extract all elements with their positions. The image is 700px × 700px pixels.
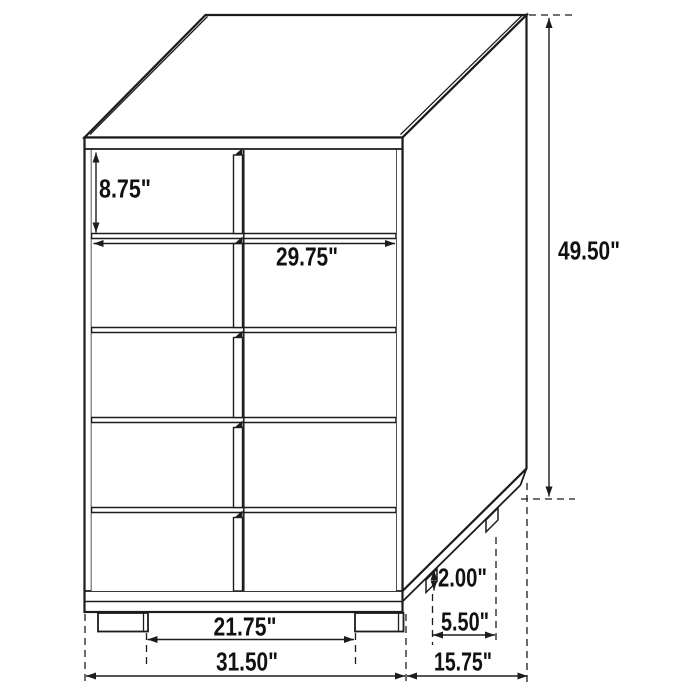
overall-width-label: 31.50"	[216, 647, 278, 677]
rear-foot-back	[486, 508, 498, 532]
drawer-handle-5	[234, 518, 243, 592]
drawer-handles	[234, 148, 243, 591]
front-foot-left	[98, 613, 148, 632]
leg-height-label: 2.00"	[438, 563, 487, 593]
rear-leg-spacing-label: 5.50"	[441, 607, 489, 637]
front-foot-right	[355, 613, 404, 632]
drawer-handle-3	[234, 338, 243, 418]
overall-depth-label: 15.75"	[434, 647, 492, 677]
drawer-handle-1	[234, 155, 243, 234]
drawer-width-label: 29.75"	[276, 242, 338, 272]
overall-height-label: 49.50"	[558, 236, 620, 266]
drawer-handle-2	[234, 244, 243, 328]
front-leg-spacing-label: 21.75"	[214, 612, 277, 642]
drawer-stack	[92, 148, 397, 591]
drawer-height-label: 8.75"	[99, 174, 151, 204]
drawer-handle-4	[234, 428, 243, 508]
dimension-diagram-page: 8.75" 29.75" 49.50" 2.00" 5.50" 21.75" 3…	[0, 0, 700, 700]
chest-diagram-svg: 8.75" 29.75" 49.50" 2.00" 5.50" 21.75" 3…	[0, 0, 700, 700]
